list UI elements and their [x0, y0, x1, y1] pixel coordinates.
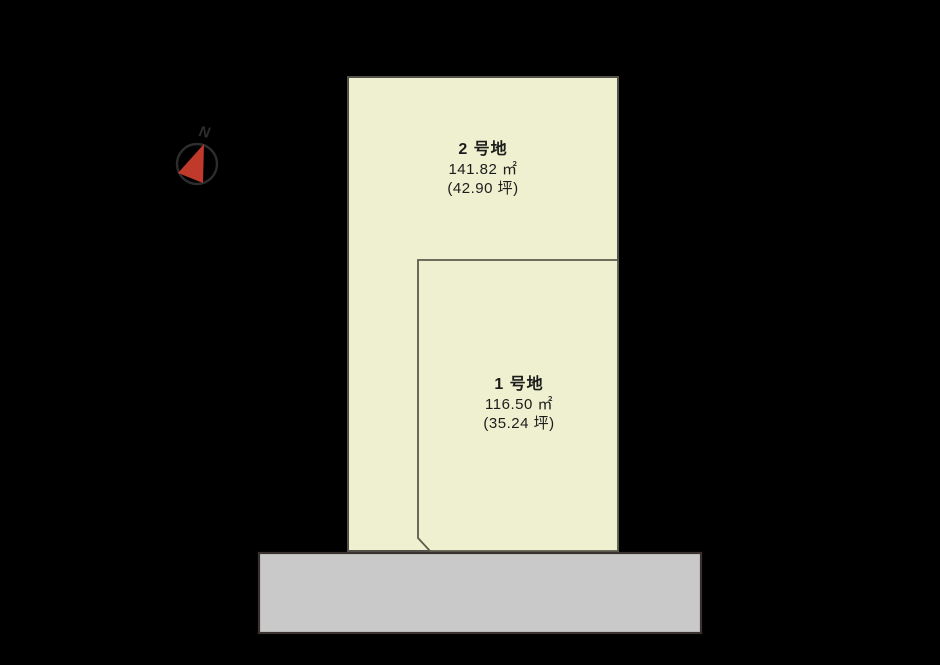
- site-plan: N 2 号地 141.82 ㎡ (42.90 坪) 1 号地 116.50 ㎡ …: [0, 0, 940, 665]
- plot-1-shape: [418, 260, 618, 551]
- road-shape: [259, 553, 701, 633]
- plan-canvas: [0, 0, 940, 665]
